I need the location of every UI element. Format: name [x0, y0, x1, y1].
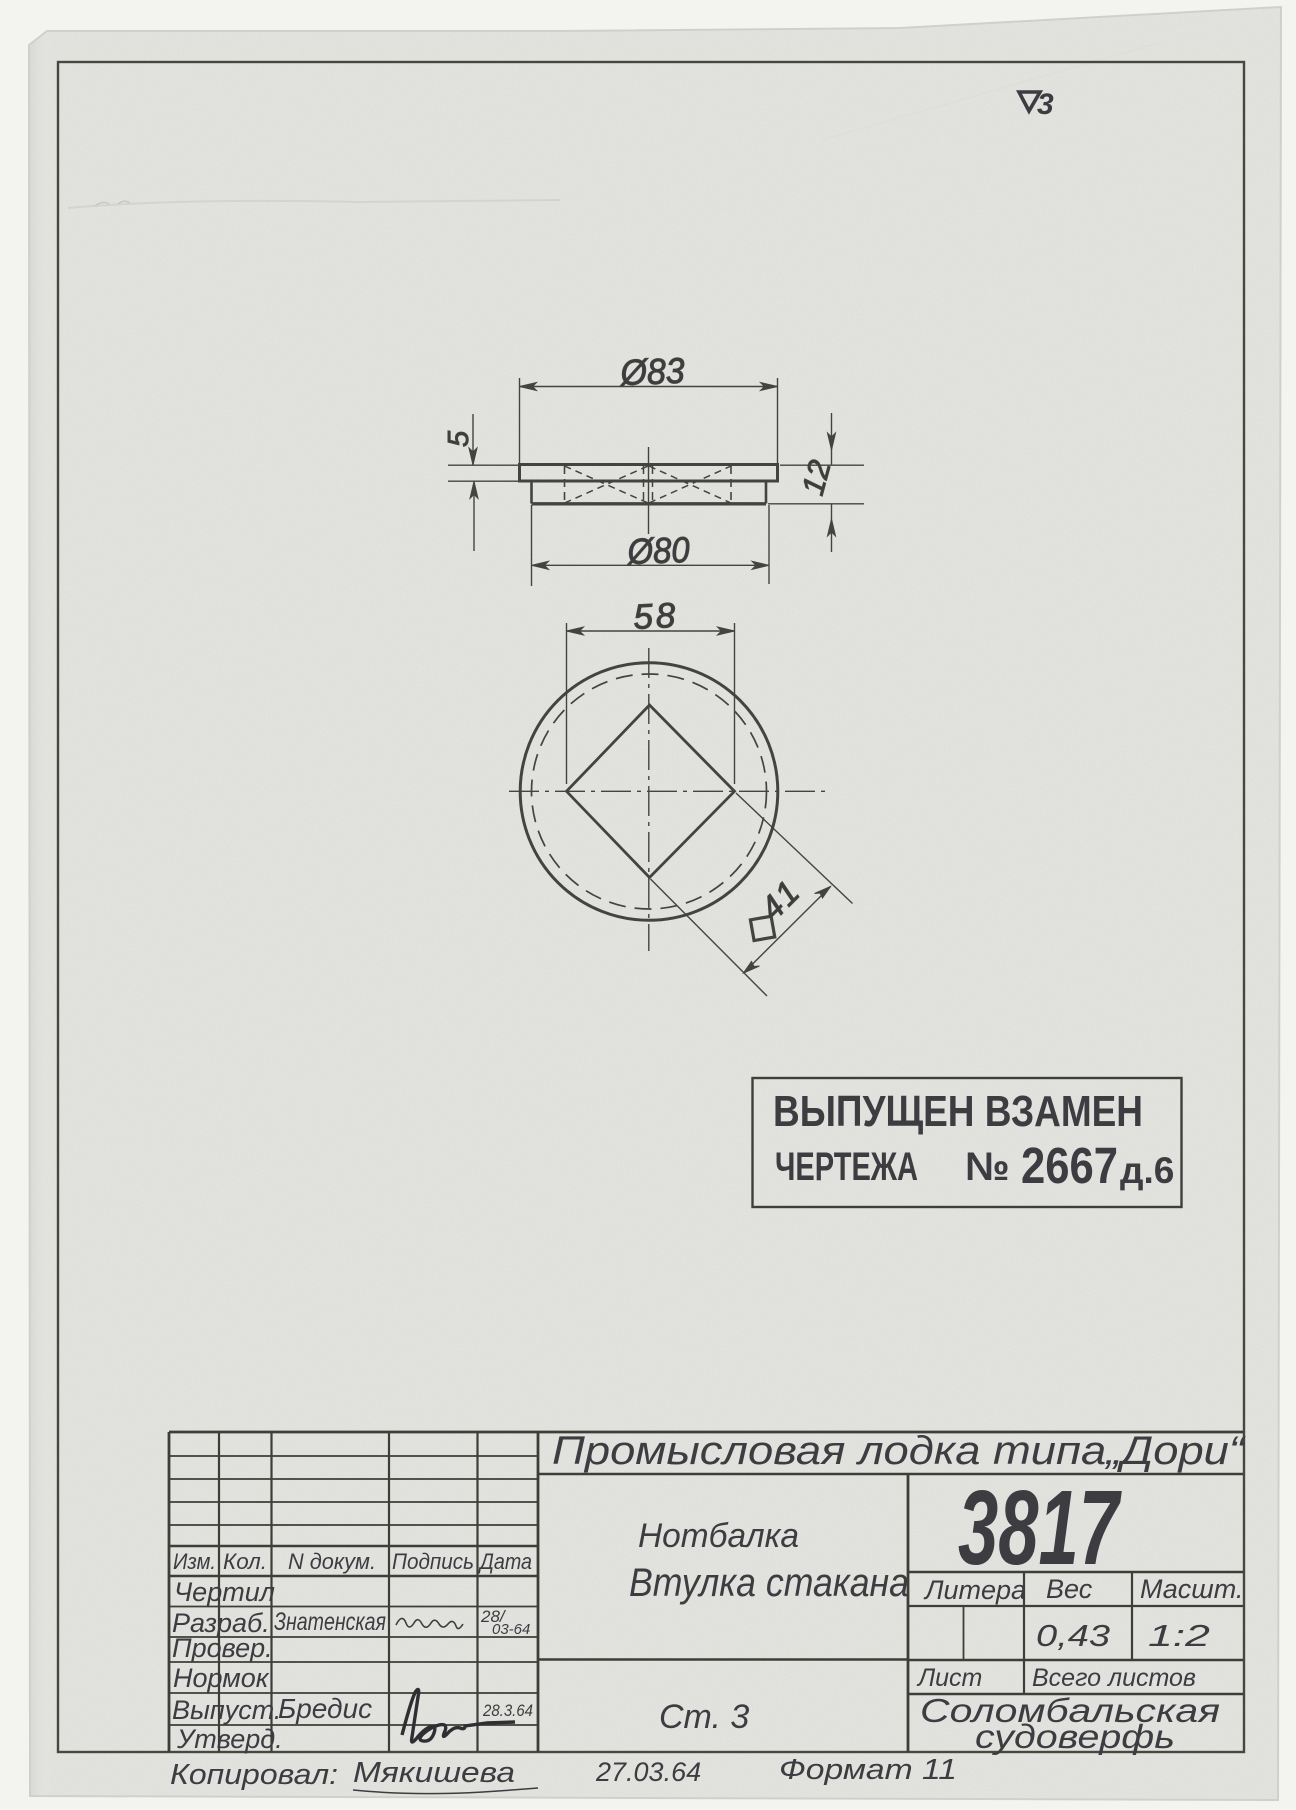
svg-text:Лист: Лист: [916, 1664, 982, 1692]
svg-text:58: 58: [632, 596, 679, 637]
svg-text:Мякишева: Мякишева: [353, 1757, 515, 1789]
svg-text:Ø80: Ø80: [626, 529, 690, 572]
svg-text:2667: 2667: [1021, 1137, 1118, 1194]
svg-text:Бредис: Бредис: [278, 1693, 372, 1724]
svg-text:Формат 11: Формат 11: [779, 1754, 957, 1786]
svg-text:судоверфь: судоверфь: [975, 1718, 1175, 1755]
svg-text:03-64: 03-64: [492, 1621, 530, 1638]
svg-text:Литера: Литера: [923, 1575, 1026, 1605]
svg-text:Копировал:: Копировал:: [170, 1759, 338, 1791]
svg-text:ВЫПУЩЕН ВЗАМЕН: ВЫПУЩЕН ВЗАМЕН: [773, 1087, 1143, 1136]
svg-text:Втулка стакана: Втулка стакана: [629, 1561, 909, 1605]
svg-text:Дата: Дата: [477, 1549, 532, 1574]
svg-text:Нормок: Нормок: [173, 1663, 270, 1693]
svg-text:28.3.64: 28.3.64: [482, 1701, 533, 1720]
svg-text:ЧЕРТЕЖА: ЧЕРТЕЖА: [775, 1145, 918, 1189]
svg-text:5: 5: [443, 430, 475, 447]
svg-text:Масшт.: Масшт.: [1140, 1574, 1243, 1604]
svg-text:3817: 3817: [958, 1469, 1122, 1587]
svg-text:д.6: д.6: [1120, 1150, 1174, 1191]
svg-text:Ø83: Ø83: [619, 350, 685, 393]
svg-text:1:2: 1:2: [1148, 1618, 1210, 1653]
svg-text:Кол.: Кол.: [223, 1549, 267, 1574]
svg-text:Подпись: Подпись: [392, 1549, 474, 1574]
svg-text:Изм.: Изм.: [173, 1549, 216, 1574]
svg-text:Вес: Вес: [1046, 1574, 1093, 1604]
svg-text:Знатенская: Знатенская: [274, 1608, 386, 1636]
svg-text:0,43: 0,43: [1036, 1618, 1110, 1653]
svg-text:3: 3: [1037, 88, 1054, 121]
svg-text:N докум.: N докум.: [288, 1549, 376, 1574]
svg-text:Чертил: Чертил: [174, 1577, 275, 1607]
svg-text:Промысловая лодка типа„Дори“: Промысловая лодка типа„Дори“: [552, 1429, 1247, 1473]
svg-text:Выпуст.: Выпуст.: [172, 1695, 281, 1725]
svg-text:№: №: [965, 1145, 1010, 1189]
svg-text:Провер.: Провер.: [172, 1633, 273, 1663]
svg-text:Нотбалка: Нотбалка: [638, 1517, 799, 1555]
svg-text:Утверд.: Утверд.: [176, 1724, 283, 1754]
svg-text:Всего листов: Всего листов: [1032, 1664, 1196, 1692]
svg-text:27.03.64: 27.03.64: [595, 1757, 701, 1787]
svg-text:Ст. 3: Ст. 3: [659, 1698, 749, 1736]
